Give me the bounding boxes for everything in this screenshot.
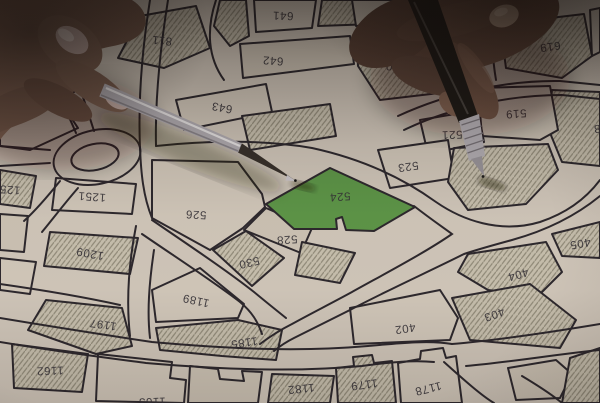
parcel-label-1162: 1162 bbox=[36, 363, 64, 376]
parcel-label-526: 526 bbox=[185, 207, 207, 220]
parcel-unlabeled-12 bbox=[508, 360, 572, 400]
parcel-label-811: 811 bbox=[151, 33, 172, 47]
parcel-label-641: 641 bbox=[272, 9, 293, 22]
parcel-unlabeled-9 bbox=[0, 214, 28, 252]
parcel-label-1163: 1163 bbox=[138, 394, 166, 403]
parcel-label-8: 8 bbox=[593, 122, 600, 134]
parcel-label-524: 524 bbox=[329, 189, 351, 202]
parcel-label-1251: 1251 bbox=[78, 189, 107, 203]
parcel-label-528: 528 bbox=[276, 232, 298, 245]
photo-of-cadastral-map: 8116416426436406195195215235245265285301… bbox=[0, 0, 600, 403]
cadastral-map: 8116416426436406195195215235245265285301… bbox=[0, 0, 600, 403]
parcel-label-642: 642 bbox=[262, 53, 284, 66]
parcel-label-125: 125 bbox=[0, 182, 21, 195]
parcel-unlabeled-7 bbox=[590, 8, 600, 56]
